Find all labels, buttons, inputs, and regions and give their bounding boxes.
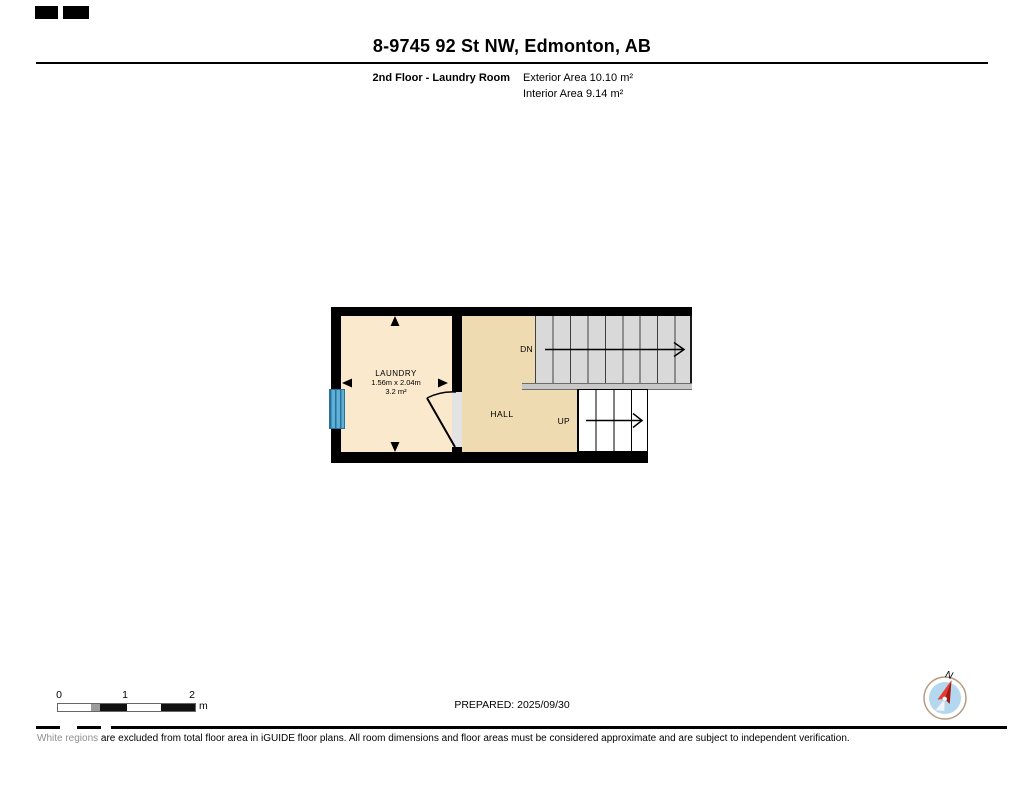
footer-divider [36, 726, 60, 729]
disclaimer-text: White regions are excluded from total fl… [37, 733, 850, 744]
disclaimer-body: are excluded from total floor area in iG… [98, 733, 850, 744]
disclaimer-highlight: White regions [37, 733, 98, 744]
prepared-date: PREPARED: 2025/09/30 [0, 699, 1024, 711]
compass-north-label: N [944, 669, 955, 682]
interior-area: Interior Area 9.14 m² [523, 88, 623, 100]
laundry-label: LAUNDRY 1.56m x 2.04m 3.2 m² [336, 369, 456, 396]
page-crop-mark [35, 6, 58, 19]
footer-divider [77, 726, 101, 729]
page-title: 8-9745 92 St NW, Edmonton, AB [0, 36, 1024, 57]
wall-bottom [331, 452, 648, 463]
floorplan-page: 8-9745 92 St NW, Edmonton, AB 2nd Floor … [0, 0, 1024, 791]
page-crop-mark [63, 6, 89, 19]
stairs-down [535, 316, 692, 383]
laundry-name: LAUNDRY [336, 369, 456, 378]
exterior-area: Exterior Area 10.10 m² [523, 72, 633, 84]
floor-label: 2nd Floor - Laundry Room [0, 72, 510, 84]
stairs-up-label: UP [520, 416, 570, 426]
laundry-dimensions: 1.56m x 2.04m [336, 378, 456, 387]
stairs-up [577, 389, 648, 452]
laundry-area: 3.2 m² [336, 387, 456, 396]
wall-top [331, 307, 692, 316]
header-divider [36, 62, 988, 64]
stairs-down-label: DN [483, 344, 533, 354]
compass-icon: N [924, 669, 966, 719]
door-opening [452, 392, 462, 447]
footer-divider [111, 726, 1007, 729]
